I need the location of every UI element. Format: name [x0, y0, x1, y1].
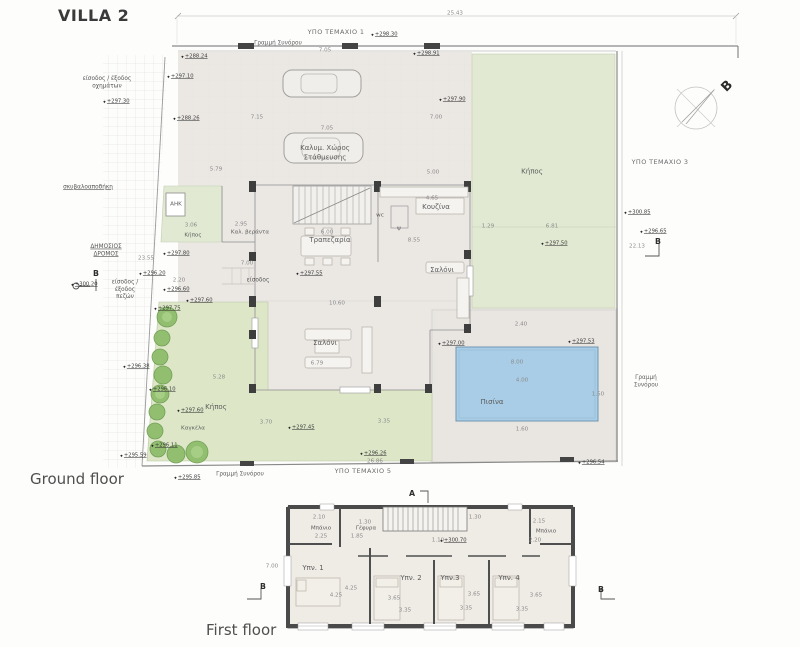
- room-label: Μπάνιο: [311, 525, 331, 532]
- elevation-marker: ✦+296.65: [639, 229, 666, 236]
- dimension-label: 3.06: [185, 222, 197, 229]
- elevation-marker: ✦+297.60: [185, 298, 212, 305]
- elevation-marker: ✦+296.11: [150, 443, 177, 450]
- dimension-label: 10.60: [329, 300, 345, 307]
- dimension-label: 1.30: [469, 514, 481, 521]
- elevation-marker: ✦+297.80: [162, 251, 189, 258]
- dimension-label: 4.65: [426, 195, 438, 202]
- page-title: VILLA 2: [58, 6, 129, 25]
- dimension-label: 7.00: [241, 260, 253, 267]
- dimension-label: 4.25: [330, 592, 342, 599]
- dimension-label: 4.00: [516, 377, 528, 384]
- dimension-label: 2.10: [313, 514, 325, 521]
- elevation-marker: ✦+295.85: [173, 475, 200, 482]
- annotation-layer: ΥΠΟ ΤΕΜΑΧΙΟ 1ΥΠΟ ΤΕΜΑΧΙΟ 3ΥΠΟ ΤΕΜΑΧΙΟ 5Γ…: [0, 0, 800, 647]
- dimension-label: 7.00: [430, 114, 442, 121]
- dimension-label: 8.00: [511, 359, 523, 366]
- dimension-label: 6.00: [321, 229, 333, 236]
- section-letter: B: [260, 582, 266, 592]
- room-label: Γέφυρα: [356, 525, 376, 532]
- annotation-note: είσοδος / έξοδος οχημάτων: [83, 76, 132, 91]
- room-label: Σαλόνι: [313, 338, 337, 347]
- dimension-label: 22.13: [629, 243, 645, 250]
- dimension-label: 2.20: [529, 537, 541, 544]
- first-floor-label: First floor: [206, 621, 276, 639]
- elevation-marker: ✦+297.60: [176, 408, 203, 415]
- room-label: Καλυμ. Χώρος Στάθμευσης: [300, 144, 350, 162]
- annotation-note: είσοδος / έξοδος πεζών: [112, 279, 138, 301]
- elevation-marker: ✦+300.20: [70, 282, 97, 289]
- dimension-label: 2.20: [173, 277, 185, 284]
- room-label: Τραπεζαρία: [309, 235, 350, 244]
- dimension-label: 7.00: [266, 563, 278, 570]
- room-label: Υπν. 2: [400, 573, 421, 582]
- dimension-label: 25.43: [447, 10, 463, 17]
- elevation-marker: ✦+296.20: [138, 271, 165, 278]
- elevation-marker: ✦+300.70: [439, 538, 466, 545]
- elevation-marker: ✦+297.55: [295, 271, 322, 278]
- dimension-label: 5.28: [213, 374, 225, 381]
- dimension-label: 6.79: [311, 360, 323, 367]
- elevation-marker: ✦+297.00: [437, 341, 464, 348]
- parcel-label: ΥΠΟ ΤΕΜΑΧΙΟ 5: [335, 468, 392, 476]
- floor-plan-page: ΥΠΟ ΤΕΜΑΧΙΟ 1ΥΠΟ ΤΕΜΑΧΙΟ 3ΥΠΟ ΤΕΜΑΧΙΟ 5Γ…: [0, 0, 800, 647]
- ground-floor-label: Ground floor: [30, 470, 124, 488]
- dimension-label: 3.70: [260, 419, 272, 426]
- dimension-label: 3.65: [530, 592, 542, 599]
- elevation-marker: ✦+297.75: [153, 306, 180, 313]
- room-label: ΑΗΚ: [170, 201, 182, 208]
- dimension-label: 3.65: [468, 591, 480, 598]
- dimension-label: 4.25: [345, 585, 357, 592]
- elevation-marker: ✦+296.60: [162, 287, 189, 294]
- dimension-label: 2.15: [533, 518, 545, 525]
- room-label: Καγκέλα: [181, 425, 205, 432]
- elevation-marker: ✦+297.90: [438, 97, 465, 104]
- room-label: Κήπος: [205, 402, 227, 411]
- elevation-marker: ✦+296.54: [577, 460, 604, 467]
- dimension-label: 3.65: [388, 595, 400, 602]
- dimension-label: 8.55: [408, 237, 420, 244]
- compass-north-label: B: [719, 78, 738, 97]
- room-label: Σαλόνι: [430, 265, 454, 274]
- dimension-label: 2.25: [315, 533, 327, 540]
- elevation-marker: ✦+296.26: [359, 451, 386, 458]
- dimension-label: 26.86: [367, 458, 383, 465]
- dimension-label: 7.15: [251, 114, 263, 121]
- room-label: Κήπος: [521, 167, 543, 176]
- elevation-marker: ✦+296.38: [122, 364, 149, 371]
- dimension-label: 7.05: [319, 47, 331, 54]
- section-letter: A: [409, 489, 415, 499]
- dimension-label: 3.35: [516, 606, 528, 613]
- room-label: ψ: [397, 225, 401, 232]
- dimension-label: 3.35: [460, 605, 472, 612]
- elevation-marker: ✦+288.24: [180, 54, 207, 61]
- dimension-label: 2.40: [515, 321, 527, 328]
- dimension-label: 1.85: [351, 533, 363, 540]
- boundary-label: Γραμμή Συνόρου: [254, 40, 302, 47]
- elevation-marker: ✦+297.50: [540, 241, 567, 248]
- annotation-note: ΔΗΜΟΣΙΟΣ ΔΡΟΜΟΣ: [90, 244, 121, 259]
- elevation-marker: ✦+297.10: [166, 74, 193, 81]
- room-label: Κουζίνα: [422, 202, 450, 211]
- parcel-label: ΥΠΟ ΤΕΜΑΧΙΟ 3: [632, 159, 689, 167]
- dimension-label: 1.30: [359, 519, 371, 526]
- dimension-label: 5.00: [427, 169, 439, 176]
- dimension-label: 7.05: [321, 125, 333, 132]
- room-label: Υπν.3: [440, 573, 459, 582]
- section-letter: Β: [93, 269, 99, 279]
- elevation-marker: ✦+296.10: [148, 387, 175, 394]
- elevation-marker: ✦+297.30: [102, 99, 129, 106]
- section-letter: B: [655, 237, 661, 247]
- elevation-marker: ✦+300.85: [623, 210, 650, 217]
- room-label: Καλ. βεράντα: [231, 229, 269, 236]
- room-label: Υπν. 1: [302, 563, 323, 572]
- room-label: Κήπος: [184, 232, 201, 239]
- dimension-label: 3.35: [378, 418, 390, 425]
- dimension-label: 23.55: [138, 255, 154, 262]
- room-label: wc: [376, 212, 384, 219]
- room-label: Πισίνα: [481, 397, 504, 406]
- boundary-label: Γραμμή Συνόρου: [216, 471, 264, 478]
- dimension-label: 6.81: [546, 223, 558, 230]
- dimension-label: 1.60: [516, 426, 528, 433]
- section-letter: B: [598, 585, 604, 595]
- room-label: Μπάνιο: [536, 528, 556, 535]
- annotation-note: σκυβαλοαποθήκη: [63, 184, 113, 191]
- dimension-label: 3.35: [399, 607, 411, 614]
- elevation-marker: ✦+298.30: [370, 32, 397, 39]
- dimension-label: 1.50: [592, 391, 604, 398]
- dimension-label: 1.10: [432, 537, 444, 544]
- elevation-marker: ✦+298.91: [412, 51, 439, 58]
- dimension-label: 5.79: [210, 166, 222, 173]
- dimension-label: 2.95: [235, 221, 247, 228]
- parcel-label: ΥΠΟ ΤΕΜΑΧΙΟ 1: [308, 29, 365, 37]
- elevation-marker: ✦+297.53: [567, 339, 594, 346]
- annotation-note: είσοδος: [247, 277, 270, 284]
- boundary-label: Γραμμή Συνόρου: [634, 375, 658, 390]
- elevation-marker: ✦+297.45: [287, 425, 314, 432]
- room-label: Υπν. 4: [498, 573, 519, 582]
- elevation-marker: ✦+295.59: [119, 453, 146, 460]
- dimension-label: 1.29: [482, 223, 494, 230]
- elevation-marker: ✦+288.26: [172, 116, 199, 123]
